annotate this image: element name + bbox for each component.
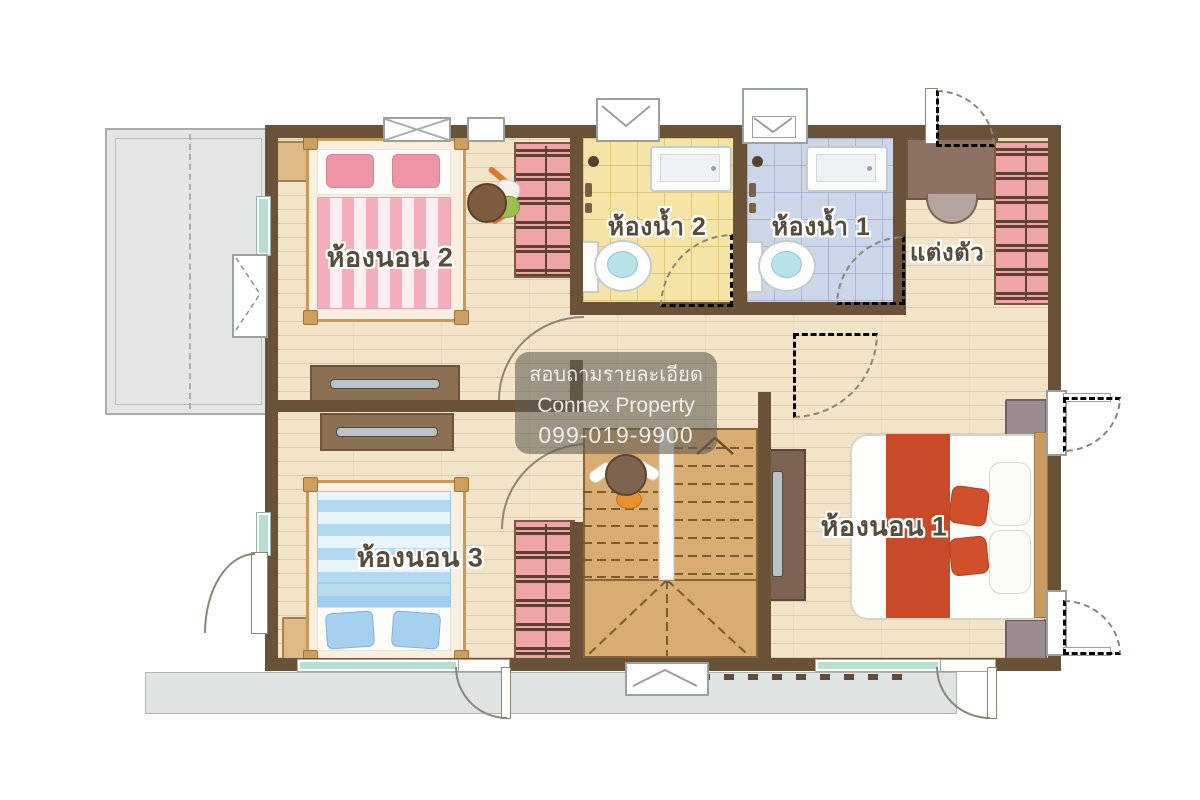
pillow <box>325 610 375 649</box>
window-glass <box>815 659 941 672</box>
tv <box>336 427 438 437</box>
wall-interior <box>570 522 583 658</box>
shower-head <box>588 156 599 167</box>
tv-cabinet <box>310 365 460 403</box>
faucet <box>749 203 756 213</box>
window-swing-arc <box>1063 397 1121 452</box>
wardrobe-dressing <box>994 141 1055 305</box>
window-sill <box>1063 647 1111 656</box>
balcony-divider <box>189 134 191 409</box>
door-leaf <box>925 88 938 144</box>
bed-bedroom2 <box>306 138 466 322</box>
wardrobe-bedroom3 <box>514 520 575 662</box>
door-leaf <box>501 667 511 719</box>
person-figure <box>585 450 655 515</box>
pillow <box>391 610 441 649</box>
folding-door <box>625 662 709 696</box>
cushion-red <box>948 535 990 577</box>
faucet <box>585 203 592 213</box>
tv-cabinet <box>320 413 454 451</box>
faucet <box>585 183 592 197</box>
watermark: สอบถามรายละเอียด Connex Property 099-019… <box>515 352 717 454</box>
wall-interior <box>733 125 747 315</box>
label-dressing: แต่งตัว <box>910 233 984 272</box>
casement-window <box>232 254 268 338</box>
window <box>467 117 505 142</box>
window-sill <box>1063 393 1111 402</box>
window-glass <box>256 512 271 556</box>
watermark-line2: Connex Property <box>537 394 695 418</box>
label-bedroom2: ห้องนอน 2 <box>327 236 454 279</box>
window-glass <box>297 659 459 672</box>
railing <box>700 674 905 680</box>
label-bedroom1: ห้องนอน 1 <box>821 505 948 548</box>
label-bathroom2: ห้องน้ำ 2 <box>608 207 707 247</box>
awning-window <box>596 98 660 142</box>
toilet-bowl <box>594 240 652 292</box>
window-leaf <box>251 552 268 634</box>
wall-interior <box>570 125 583 302</box>
vanity-table <box>906 138 998 200</box>
pillow <box>989 530 1031 594</box>
tv <box>330 379 440 389</box>
window-glass <box>256 196 271 256</box>
pillow <box>392 154 440 188</box>
casement-glyph <box>234 256 262 332</box>
toilet-bowl <box>758 240 816 292</box>
tv <box>772 471 783 577</box>
window-swing-arc <box>204 553 255 633</box>
sink <box>806 146 888 192</box>
faucet <box>749 183 756 197</box>
wall-stairwell <box>758 392 771 658</box>
shower-head <box>752 156 763 167</box>
pillow <box>326 154 374 188</box>
cushion-red <box>948 485 991 528</box>
fold-glyph <box>627 664 703 690</box>
sink <box>650 146 732 192</box>
foot-band <box>317 607 451 651</box>
person-head <box>605 454 647 496</box>
window-hatched <box>383 117 451 142</box>
pillow <box>989 462 1031 526</box>
door-leaf <box>987 667 997 719</box>
floor-plan: ห้องนอน 2 ห้องน้ำ 2 ห้องน้ำ 1 แต่งตัว ห้… <box>0 0 1200 800</box>
awning-window <box>742 88 808 144</box>
watermark-phone: 099-019-9900 <box>538 422 693 449</box>
awning-glyph <box>598 100 654 136</box>
label-bathroom1: ห้องน้ำ 1 <box>772 207 871 247</box>
awning-glyph <box>752 116 794 136</box>
pillow-band <box>317 149 451 195</box>
label-bedroom3: ห้องนอน 3 <box>357 536 484 579</box>
wall-interior <box>893 125 906 315</box>
person-figure <box>460 168 530 228</box>
person-head <box>467 183 507 223</box>
nightstand <box>1005 619 1047 663</box>
watermark-line1: สอบถามรายละเอียด <box>529 358 703 390</box>
